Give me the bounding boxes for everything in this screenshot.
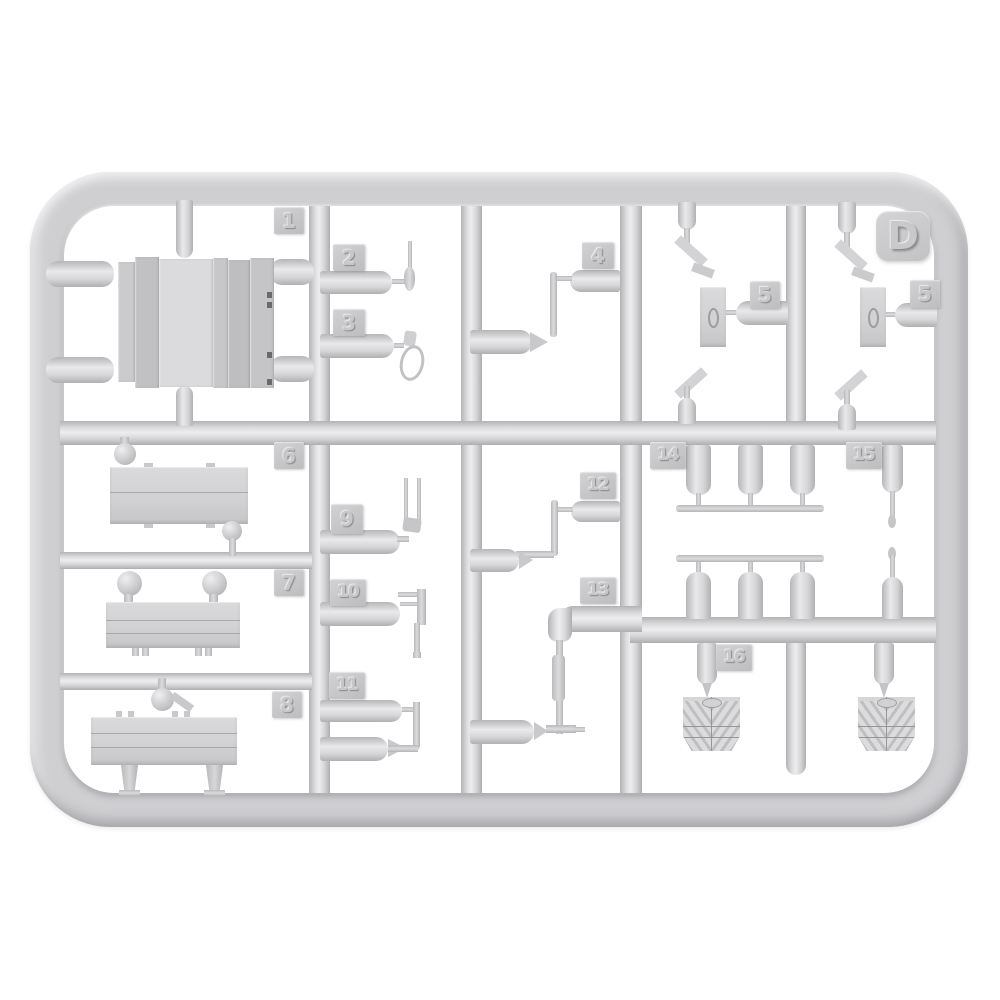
sprue-gate (470, 720, 534, 744)
tweezer-hinge (402, 517, 422, 533)
bench-top (91, 717, 237, 765)
plate-oval (702, 698, 722, 708)
part-number-tag-1: 1 (274, 207, 304, 234)
part-number-tag-13: 13 (580, 577, 616, 604)
plate-line (683, 737, 740, 738)
part-5-bracket-left (672, 200, 792, 430)
part-6-panel (106, 435, 256, 565)
sprue-gate (176, 200, 193, 258)
part-15-spikes (882, 443, 912, 623)
caliper-jaw (400, 602, 418, 606)
part-number-tag-14: 14 (650, 442, 686, 469)
part-8-bench (88, 672, 248, 802)
sprue-gate (320, 700, 402, 722)
caliper-body (417, 589, 426, 625)
panel-foot (205, 648, 212, 656)
panel-foot (195, 648, 202, 656)
panel-body (110, 467, 248, 524)
plate-body (683, 697, 740, 751)
sprue-gate (686, 572, 711, 619)
sprue-gate (270, 356, 314, 382)
panel-tab (144, 524, 153, 528)
crank-pin (556, 276, 572, 281)
part-number-tag-4: 4 (582, 242, 614, 269)
sprue-gate (320, 271, 392, 294)
runner-branch (560, 606, 642, 632)
runner-vertical-4-stub (786, 625, 806, 775)
sprue-gate-ball (202, 571, 227, 596)
sprue-gate (320, 737, 388, 761)
part-number-tag-16: 16 (716, 644, 752, 671)
gate-taper (702, 683, 712, 698)
radiator-slab (135, 257, 159, 388)
gate-taper (530, 332, 548, 352)
part-number-tag-7: 7 (274, 569, 304, 596)
crank-pin (557, 507, 573, 512)
pin-loop (397, 343, 428, 383)
part-number-tag-2: 2 (333, 244, 365, 271)
radiator-slab (213, 258, 228, 388)
sprue-letter-tab: D (876, 211, 930, 261)
part-number-tag-15: 15 (846, 442, 882, 469)
sprue-gate (470, 549, 519, 572)
runner-branch-bend (548, 608, 572, 642)
part-number-tag-5b: 5 (910, 280, 940, 308)
radiator-slab (228, 260, 250, 388)
tool-spike (408, 241, 412, 269)
panel-tab (206, 463, 215, 467)
bench-leg (121, 765, 138, 792)
sprue-gate-ball (117, 571, 142, 596)
plate-ribs (858, 701, 887, 755)
bench-foot (119, 790, 140, 796)
sprue-gate (270, 259, 314, 285)
plate-line (858, 737, 915, 738)
sprue-photo: 1 2 3 4 5 5 6 7 8 9 10 11 12 13 14 15 16… (0, 0, 1000, 1000)
rail-part (676, 555, 824, 562)
part-number-tag-6: 6 (274, 442, 304, 469)
sprue-gate (46, 357, 114, 383)
sprue-gate (882, 445, 903, 493)
gate-pin (394, 343, 404, 348)
plate-ribs (712, 701, 741, 755)
mold-detail-dot (267, 302, 272, 308)
gate-taper (534, 722, 548, 740)
plate-ribs (683, 701, 712, 755)
bracket-arm (691, 263, 715, 279)
sprue-gate (571, 501, 620, 522)
bench-leg (206, 765, 223, 792)
part-1-radiator-block (46, 198, 326, 438)
plate-oval (877, 698, 897, 708)
gate-pin (397, 536, 409, 542)
sprue-gate (320, 334, 394, 358)
part-7-panel (106, 566, 251, 661)
sprue-gate (738, 445, 763, 495)
crank-shaft (550, 272, 557, 337)
spike-tip (888, 515, 896, 528)
crank-shaft (551, 500, 558, 556)
sprue-gate (697, 643, 717, 685)
rod-turnbuckle (552, 655, 565, 701)
sprue-gate (882, 577, 903, 619)
caliper-tip (413, 652, 421, 658)
sprue-gate-ball (114, 443, 136, 465)
plate-line (858, 726, 915, 727)
part-number-tag-10: 10 (330, 579, 366, 606)
part-14-rails (676, 443, 826, 623)
sprue-gate (176, 386, 193, 426)
radiator-slab (159, 259, 213, 387)
tweezer-prong (404, 478, 408, 520)
caliper-stem (414, 623, 420, 655)
mold-detail-dot (267, 379, 272, 385)
rod-end-fitting (546, 725, 576, 733)
part-16-ribbed-plate-right (853, 643, 918, 753)
gate-stem (229, 538, 236, 556)
part-number-tag-3: 3 (333, 309, 365, 336)
part-number-tag-5a: 5 (750, 281, 780, 309)
panel-tab (206, 524, 215, 528)
part-number-tag-11: 11 (329, 672, 365, 699)
tweezer-prong (417, 478, 421, 520)
bracket-arm (674, 367, 707, 399)
rail-part (676, 505, 824, 512)
bracket-plate (860, 287, 886, 347)
sprue-gate (678, 398, 696, 424)
sprue-gate (838, 404, 856, 430)
part-13-jack-rod (461, 577, 646, 752)
sprue-gate (46, 261, 114, 287)
sprue-gate (790, 572, 815, 619)
panel-foot (142, 648, 149, 656)
sprue-gate (738, 572, 763, 619)
sprue-gate (470, 330, 532, 354)
gate-taper (519, 551, 533, 569)
bracket-arm (834, 369, 867, 401)
mold-detail-dot (267, 292, 272, 298)
sprue-gate (570, 270, 620, 292)
bracket-slot (868, 308, 879, 328)
sprue-gate (874, 643, 894, 685)
bracket-arm (851, 267, 875, 283)
rod-horizontal (388, 745, 418, 752)
radiator-slab (250, 258, 274, 388)
plate-ribs (887, 701, 916, 755)
sprue-gate (838, 202, 856, 234)
sprue-gate (686, 445, 711, 495)
tool-handle (404, 267, 415, 291)
mold-detail-dot (267, 352, 272, 358)
part-11-l-rod (320, 696, 435, 766)
bracket-arm (674, 235, 707, 267)
sprue-gate (790, 445, 815, 495)
part-number-tag-9: 9 (331, 504, 363, 534)
panel-tab (144, 463, 153, 467)
radiator-slab (118, 262, 135, 382)
bracket-arm (834, 239, 867, 271)
plate-line (683, 726, 740, 727)
part-number-tag-12: 12 (580, 472, 616, 499)
bench-foot (204, 790, 225, 796)
bracket-slot (708, 308, 719, 328)
panel-body (106, 602, 240, 648)
part-number-tag-8: 8 (272, 691, 302, 718)
spike-pin (890, 491, 895, 517)
sprue-gate (678, 202, 696, 230)
panel-foot (132, 648, 139, 656)
bracket-plate (700, 287, 726, 347)
plate-body (858, 697, 915, 751)
rod-end-tip (575, 727, 585, 732)
gate-taper (879, 683, 889, 698)
